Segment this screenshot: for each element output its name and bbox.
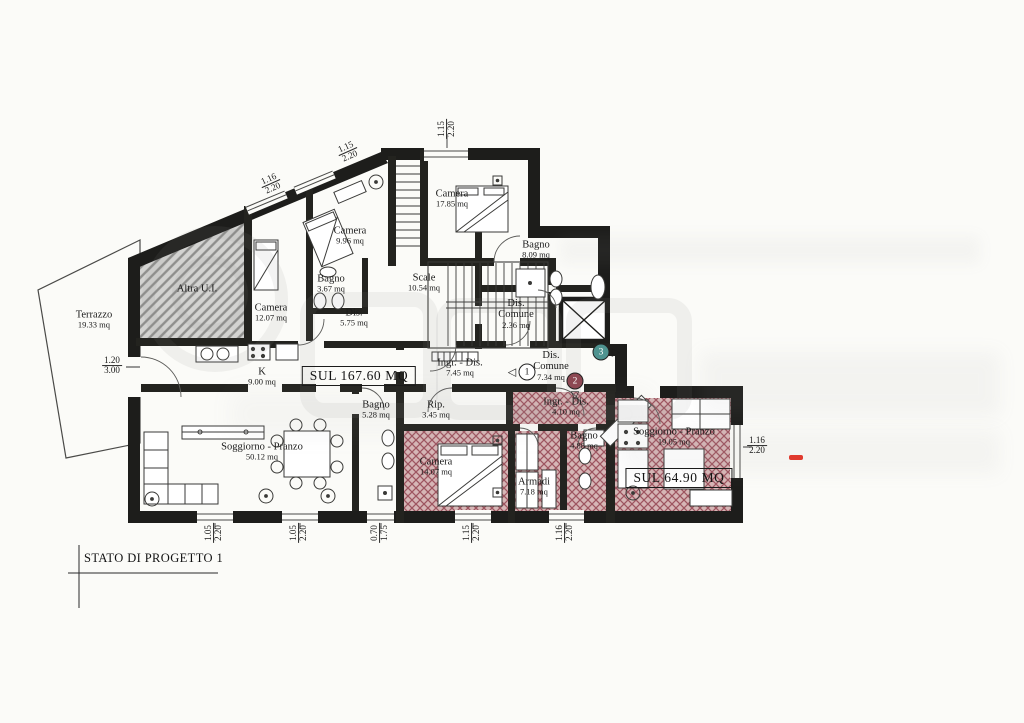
room-area: 4.88 mq: [570, 442, 598, 452]
room-label: Scale10.54 mq: [408, 272, 440, 293]
dimension-label: 1.152.20: [437, 119, 457, 139]
room-area: 12.07 mq: [255, 314, 288, 324]
room-name: Dis. Comune: [498, 298, 534, 321]
room-area: 5.75 mq: [340, 319, 368, 329]
room-label: Camera17.85 mq: [436, 188, 469, 209]
sul-area-box: SUL 64.90 MQ: [625, 468, 732, 488]
circled-number-marker: 3: [593, 344, 610, 361]
title-block: STATO DI PROGETTO 1: [84, 551, 223, 566]
room-label: Ingr. - Dis.4.10 mq: [543, 396, 589, 417]
dimension-width: 0.70: [370, 523, 379, 543]
marker-arrow-icon: ◁: [508, 366, 516, 379]
dimension-width: 1.15: [437, 119, 446, 139]
dimension-height: 2.20: [472, 523, 482, 543]
floor-plan-drawing: [0, 0, 1024, 723]
room-area: 19.05 mq: [633, 438, 715, 448]
dimension-width: 1.15: [462, 523, 471, 543]
room-label: Soggiorno - Pranzo50.12 mq: [221, 441, 303, 462]
room-name: Altra U.I.: [177, 283, 218, 294]
elevator: [561, 299, 607, 341]
room-area: 50.12 mq: [221, 453, 303, 463]
dimension-width: 1.05: [204, 523, 213, 543]
room-area: 9.96 mq: [334, 237, 367, 247]
dimension-label: 1.162.20: [555, 523, 575, 543]
room-label: Bagno3.67 mq: [317, 273, 345, 294]
room-label: Camera14.07 mq: [420, 456, 453, 477]
dimension-label: 1.052.20: [289, 523, 309, 543]
dimension-height: 2.20: [214, 523, 224, 543]
room-label: Bagno4.88 mq: [570, 430, 598, 451]
room-area: 5.28 mq: [362, 411, 390, 421]
dimension-width: 1.16: [747, 436, 767, 445]
marker-arrow-icon: ▽: [571, 389, 579, 402]
room-area: 7.18 mq: [518, 488, 550, 498]
terrace-outline: [38, 240, 140, 458]
marker-arrow-icon: ▷: [612, 346, 620, 359]
room-area: 7.34 mq: [533, 372, 569, 382]
dimension-height: 1.75: [380, 523, 390, 543]
room-area: 4.10 mq: [543, 408, 589, 418]
dimension-label: 1.203.00: [102, 356, 122, 376]
room-label: Dis. Comune2.36 mq: [498, 298, 534, 330]
room-area: 3.45 mq: [422, 411, 450, 421]
red-dash-mark: [789, 455, 803, 460]
room-label: Dis. Comune7.34 mq: [533, 350, 569, 382]
floor-plan-page: Terrazzo19.33 mqAltra U.I.Camera9.96 mqB…: [0, 0, 1024, 723]
dimension-height: 2.20: [565, 523, 575, 543]
room-area: 10.54 mq: [408, 284, 440, 294]
dimension-label: 1.162.20: [747, 436, 767, 456]
room-label: Camera9.96 mq: [334, 225, 367, 246]
room-label: Bagno5.28 mq: [362, 399, 390, 420]
room-label: Ingr. - Dis.7.45 mq: [437, 357, 483, 378]
dimension-label: 1.052.20: [204, 523, 224, 543]
dimension-height: 3.00: [102, 366, 122, 376]
room-area: 8.09 mq: [522, 251, 550, 261]
room-label: Soggiorno - Pranzo19.05 mq: [633, 426, 715, 447]
room-area: 7.45 mq: [437, 369, 483, 379]
room-area: 19.33 mq: [76, 321, 113, 331]
room-area: 2.36 mq: [498, 320, 534, 330]
room-area: 14.07 mq: [420, 468, 453, 478]
room-label: Bagno8.09 mq: [522, 239, 550, 260]
room-label: Dis.5.75 mq: [340, 307, 368, 328]
room-label: Altra U.I.: [177, 283, 218, 294]
room-label: Terrazzo19.33 mq: [76, 309, 113, 330]
circled-number-marker: 2: [567, 373, 584, 390]
dimension-width: 1.16: [555, 523, 564, 543]
room-label: Camera12.07 mq: [255, 302, 288, 323]
room-label: K9.00 mq: [248, 366, 276, 387]
dimension-height: 2.20: [747, 446, 767, 456]
sul-area-box: SUL 167.60 MQ: [302, 366, 416, 386]
dimension-height: 2.20: [299, 523, 309, 543]
room-area: 17.85 mq: [436, 200, 469, 210]
circled-number-marker: 1: [519, 364, 536, 381]
title-block-text: STATO DI PROGETTO 1: [84, 551, 223, 565]
room-area: 3.67 mq: [317, 285, 345, 295]
dimension-label: 0.701.75: [370, 523, 390, 543]
room-name: Dis. Comune: [533, 350, 569, 373]
dimension-height: 2.20: [447, 119, 457, 139]
room-label: Rip.3.45 mq: [422, 399, 450, 420]
dimension-width: 1.20: [102, 356, 122, 365]
room-area: 9.00 mq: [248, 378, 276, 388]
room-label: Armadi7.18 mq: [518, 476, 550, 497]
dimension-width: 1.05: [289, 523, 298, 543]
dimension-label: 1.152.20: [462, 523, 482, 543]
